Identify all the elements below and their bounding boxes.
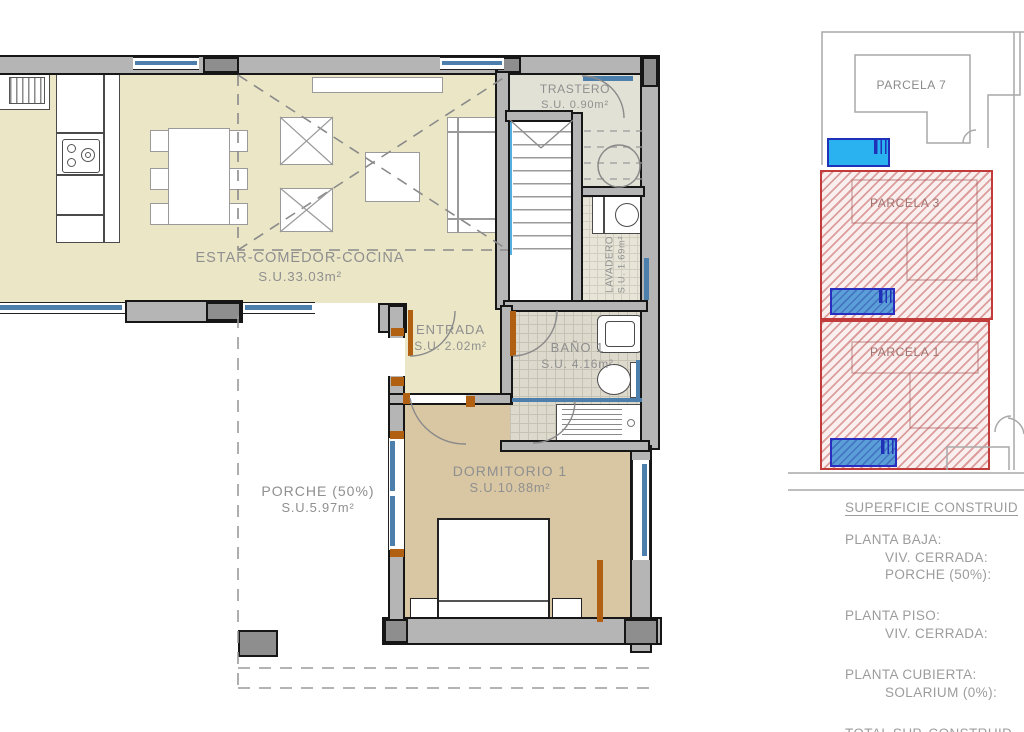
- window: [133, 57, 199, 70]
- room-label-bano: BAÑO 1 S.U. 4.16m²: [515, 340, 640, 372]
- sofa: [447, 117, 497, 233]
- wall-segment: [640, 55, 660, 450]
- coffee-table: [365, 152, 420, 202]
- pool: [830, 288, 895, 315]
- parcela-7-label: PARCELA 7: [853, 78, 970, 92]
- room-area: S.U.10.88m²: [425, 480, 595, 497]
- room-label-dormitorio: DORMITORIO 1 S.U.10.88m²: [425, 462, 595, 497]
- pillar: [203, 57, 239, 73]
- heater-area-floor: [581, 112, 648, 188]
- legend-group: PLANTA PISO: VIV. CERRADA:: [845, 607, 1024, 642]
- door-jamb: [390, 549, 404, 557]
- pool-steps: [881, 440, 895, 454]
- wall-segment: [571, 112, 583, 310]
- room-area: S.U.5.97m²: [243, 500, 393, 517]
- room-label-trastero: TRASTERO S.U. 0.90m²: [505, 82, 645, 112]
- kitchen-sink-unit: [0, 72, 50, 110]
- parcela-1-label: PARCELA 1: [830, 345, 980, 359]
- door-jamb: [391, 377, 404, 386]
- legend-title: SUPERFICIE CONSTRUID: [845, 500, 1024, 515]
- bed: [437, 518, 550, 623]
- legend-heading: TOTAL SUP. CONSTRUID: [845, 725, 1024, 732]
- room-area: S.U. 0.90m²: [505, 98, 645, 112]
- parcela-3-label: PARCELA 3: [830, 196, 980, 210]
- legend-heading: PLANTA PISO:: [845, 607, 1024, 625]
- room-area: S.U.33.03m²: [170, 268, 430, 285]
- legend-heading: PLANTA CUBIERTA:: [845, 666, 1024, 684]
- room-name: ESTAR-COMEDOR-COCINA: [170, 249, 430, 268]
- sink-drainer: [9, 77, 45, 104]
- staircase: [513, 118, 571, 255]
- window: [644, 258, 649, 300]
- room-label-porche: PORCHE (50%) S.U.5.97m²: [243, 482, 393, 517]
- floorplan-sheet: ESTAR-COMEDOR-COCINA S.U.33.03m² TRASTER…: [0, 0, 1024, 732]
- legend-group: TOTAL SUP. CONSTRUID: [845, 725, 1024, 732]
- window: [632, 460, 650, 560]
- door-jamb: [390, 431, 404, 439]
- window: [583, 76, 633, 81]
- wall-segment: [581, 186, 645, 197]
- room-name: PORCHE (50%): [243, 482, 393, 500]
- porch-pillar: [238, 630, 278, 657]
- armchair: [280, 117, 333, 165]
- room-name: TRASTERO: [505, 82, 645, 98]
- surface-legend: SUPERFICIE CONSTRUID PLANTA BAJA: VIV. C…: [845, 500, 1024, 732]
- burner-icon: [67, 144, 76, 153]
- burner-icon: [67, 158, 76, 167]
- room-label-estar: ESTAR-COMEDOR-COCINA S.U.33.03m²: [170, 249, 430, 285]
- kitchen-counter-panel: [104, 73, 120, 243]
- stove: [62, 139, 100, 173]
- legend-item: PORCHE (50%):: [845, 566, 1024, 583]
- legend-group: PLANTA CUBIERTA: SOLARIUM (0%):: [845, 666, 1024, 701]
- room-name: ENTRADA: [398, 322, 503, 339]
- door-jamb: [466, 396, 475, 407]
- room-area: S.U. 4.16m²: [515, 357, 640, 373]
- burner-icon: [85, 152, 91, 158]
- room-area: S.U. 1.69m²: [617, 214, 629, 314]
- room-area: S.U. 2.02m²: [398, 339, 503, 355]
- room-label-entrada: ENTRADA S.U. 2.02m²: [398, 322, 503, 354]
- pillar: [206, 302, 241, 321]
- legend-group: PLANTA BAJA: VIV. CERRADA: PORCHE (50%):: [845, 531, 1024, 583]
- armchair: [280, 188, 333, 232]
- room-name: BAÑO 1: [515, 340, 640, 357]
- pillar: [624, 619, 658, 645]
- door-opening: [410, 395, 466, 403]
- shower-drain-icon: [627, 419, 635, 427]
- window: [440, 57, 504, 70]
- room-name: DORMITORIO 1: [425, 462, 595, 480]
- legend-item: VIV. CERRADA:: [845, 549, 1024, 566]
- legend-item: SOLARIUM (0%):: [845, 684, 1024, 701]
- room-name: LAVADERO: [604, 214, 617, 314]
- pool-steps: [874, 140, 888, 154]
- window: [0, 302, 125, 314]
- pool-steps: [879, 290, 893, 303]
- wall-segment: [382, 617, 662, 645]
- pillar: [384, 619, 408, 643]
- tiled-edge: [512, 398, 642, 402]
- pool: [830, 438, 897, 467]
- window: [243, 302, 315, 314]
- room-label-lavadero: LAVADERO S.U. 1.69m²: [604, 214, 629, 314]
- shower-tray: [556, 404, 642, 442]
- door-jamb: [403, 393, 410, 404]
- pool: [827, 138, 890, 167]
- dining-table: [168, 128, 230, 225]
- legend-heading: PLANTA BAJA:: [845, 531, 1024, 549]
- wardrobe-door: [597, 560, 603, 622]
- wall-segment: [0, 55, 660, 75]
- sideboard: [312, 77, 443, 93]
- wall-segment: [500, 440, 650, 452]
- legend-item: VIV. CERRADA:: [845, 625, 1024, 642]
